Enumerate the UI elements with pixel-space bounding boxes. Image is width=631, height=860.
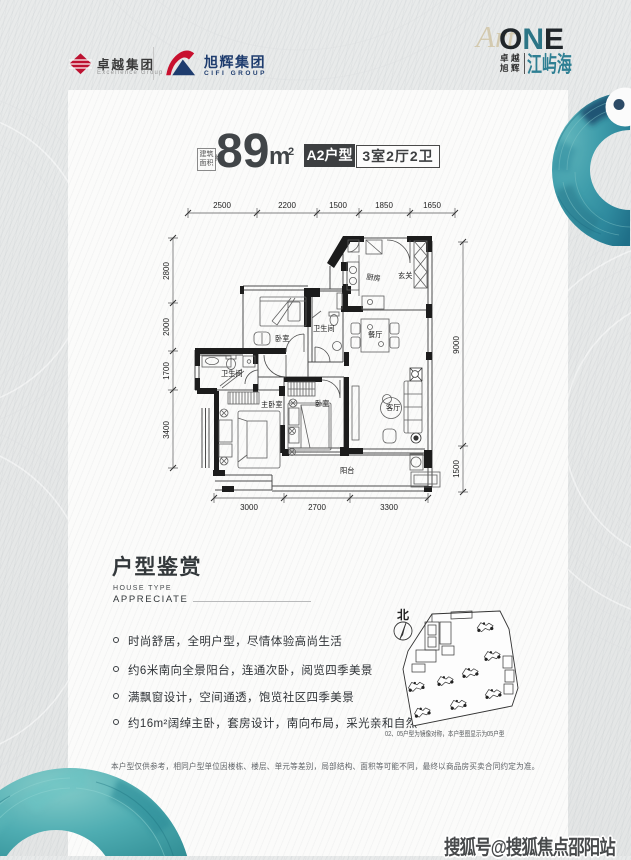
svg-text:北: 北 xyxy=(397,607,409,622)
